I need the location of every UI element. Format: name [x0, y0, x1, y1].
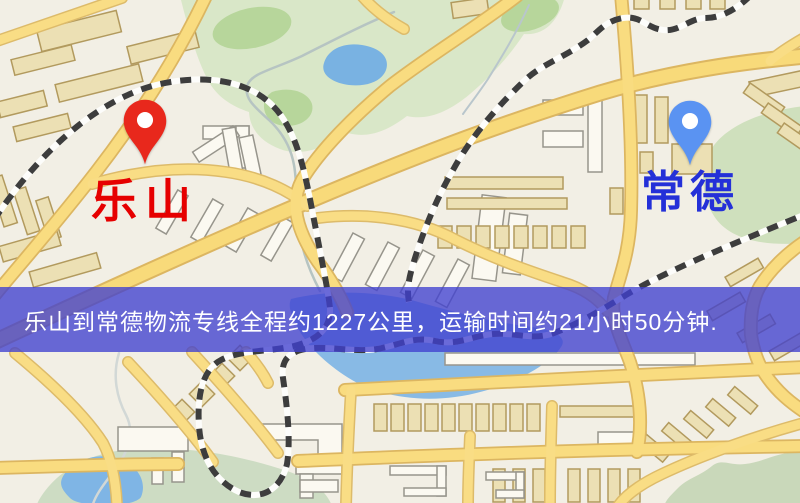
map-viewport[interactable]: 乐山 常德 乐山到常德物流专线全程约1227公里，运输时间约21小时50分钟.	[0, 0, 800, 503]
blue-pin-icon[interactable]	[667, 98, 713, 168]
pin-hole	[137, 112, 153, 128]
basemap	[0, 0, 800, 503]
origin-marker[interactable]: 乐山	[122, 98, 168, 166]
destination-label: 常德	[641, 172, 739, 214]
red-pin-icon[interactable]	[122, 98, 168, 166]
route-info-banner: 乐山到常德物流专线全程约1227公里，运输时间约21小时50分钟.	[0, 287, 800, 352]
pin-body	[669, 101, 712, 165]
origin-label: 乐山	[91, 180, 199, 224]
destination-marker[interactable]: 常德	[667, 98, 713, 168]
route-info-text: 乐山到常德物流专线全程约1227公里，运输时间约21小时50分钟.	[24, 303, 718, 337]
pin-body	[124, 100, 167, 164]
pin-hole	[682, 113, 698, 129]
